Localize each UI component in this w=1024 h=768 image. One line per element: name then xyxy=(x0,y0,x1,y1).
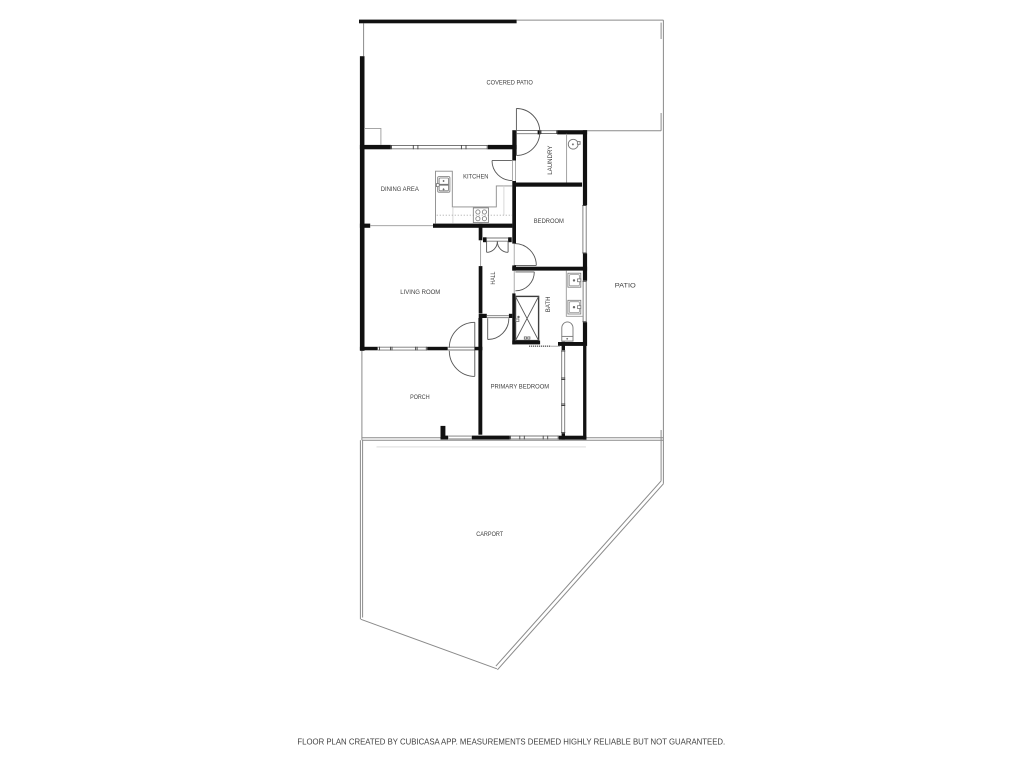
svg-text:CARPORT: CARPORT xyxy=(476,532,503,538)
svg-text:BEDROOM: BEDROOM xyxy=(534,219,564,225)
svg-text:PATIO: PATIO xyxy=(615,283,636,289)
svg-text:BATH: BATH xyxy=(546,297,552,313)
svg-text:HALL: HALL xyxy=(491,271,497,284)
svg-text:PRIMARY BEDROOM: PRIMARY BEDROOM xyxy=(491,385,550,391)
svg-text:KITCHEN: KITCHEN xyxy=(463,174,488,180)
svg-text:DINING AREA: DINING AREA xyxy=(381,187,419,193)
svg-text:LIVING ROOM: LIVING ROOM xyxy=(400,290,440,296)
svg-text:FLOOR PLAN CREATED BY CUBICASA: FLOOR PLAN CREATED BY CUBICASA APP. MEAS… xyxy=(297,738,725,747)
svg-text:PORCH: PORCH xyxy=(410,395,430,401)
svg-text:COVERED PATIO: COVERED PATIO xyxy=(487,80,534,86)
svg-text:LAUNDRY: LAUNDRY xyxy=(548,146,554,175)
